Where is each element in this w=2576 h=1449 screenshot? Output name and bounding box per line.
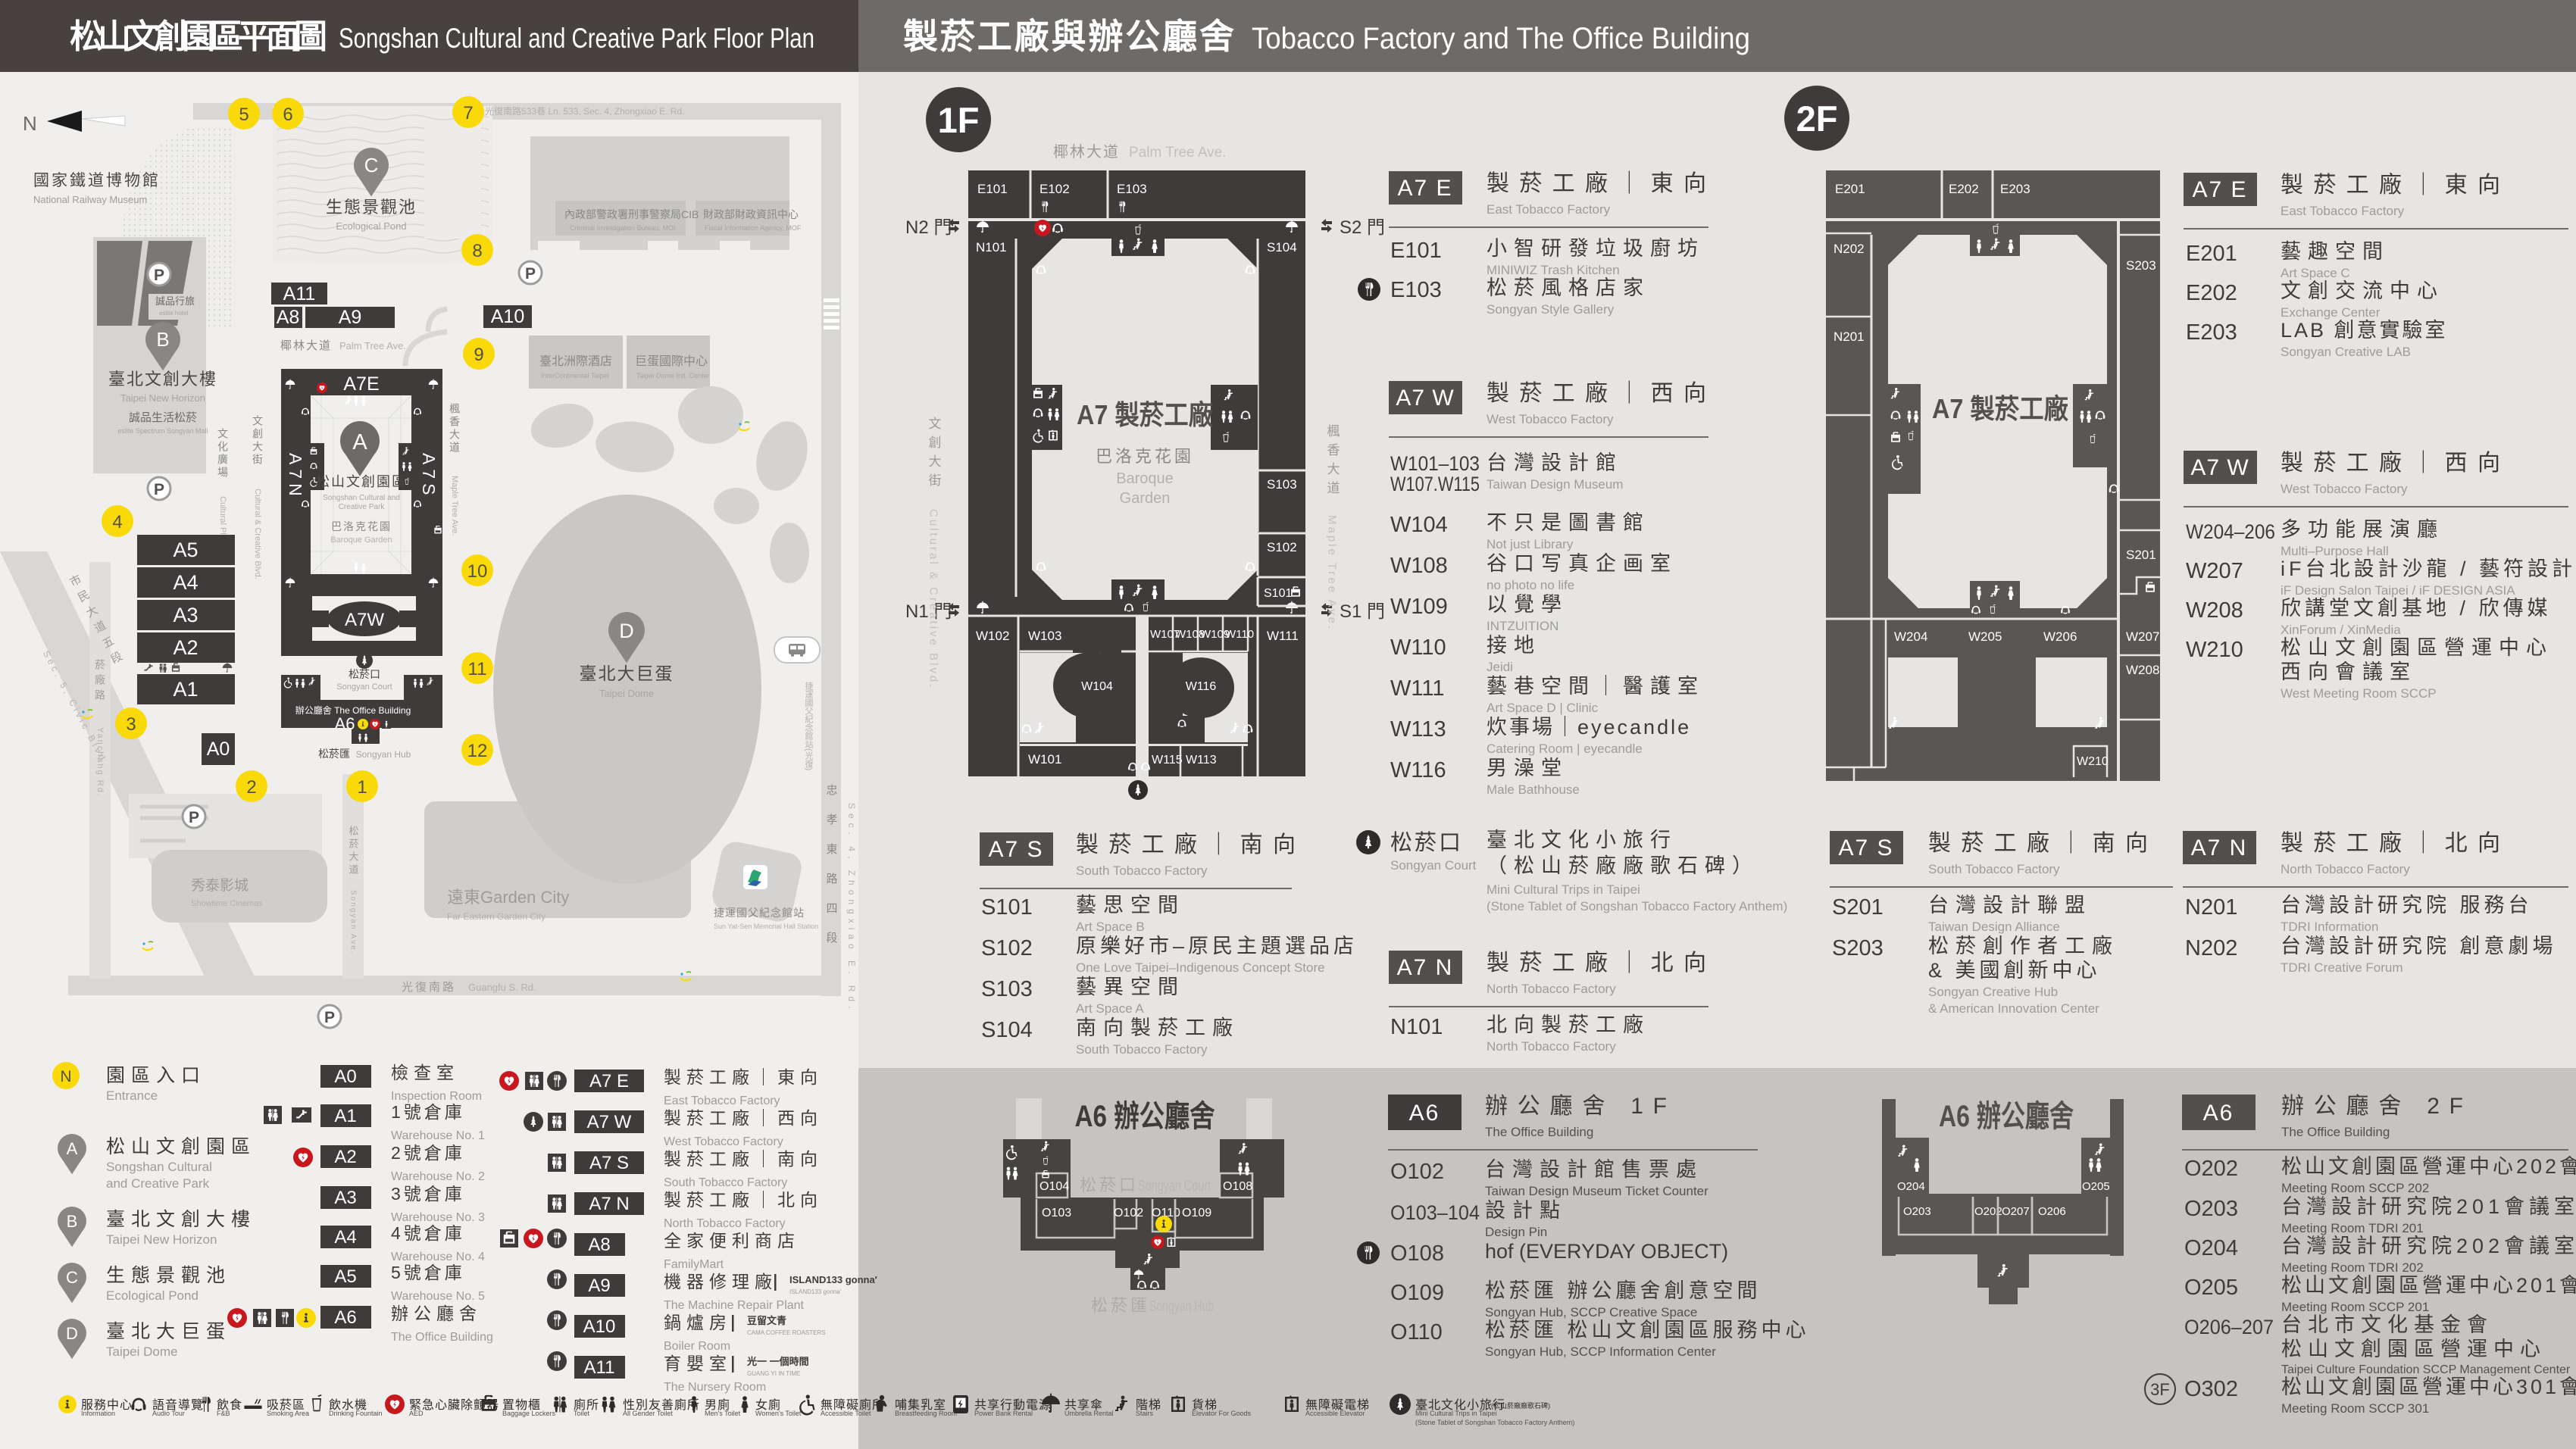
svg-text:巨蛋國際中心: 巨蛋國際中心 bbox=[635, 354, 708, 368]
svg-text:Art Space A: Art Space A bbox=[1076, 1001, 1144, 1016]
svg-text:W111: W111 bbox=[1390, 676, 1444, 701]
svg-text:Songyan Hub, SCCP Information: Songyan Hub, SCCP Information Center bbox=[1485, 1344, 1716, 1359]
svg-text:O205: O205 bbox=[2082, 1180, 2110, 1193]
svg-text:N: N bbox=[23, 112, 37, 135]
svg-text:製菸工廠｜西向: 製菸工廠｜西向 bbox=[664, 1108, 823, 1128]
svg-text:Warehouse No. 2: Warehouse No. 2 bbox=[391, 1170, 485, 1183]
svg-text:Sec. 4, Zhongxiao E. Rd.: Sec. 4, Zhongxiao E. Rd. bbox=[846, 803, 857, 1013]
svg-text:Warehouse No. 5: Warehouse No. 5 bbox=[391, 1290, 485, 1303]
svg-text:台灣設計研究院 創意劇場: 台灣設計研究院 創意劇場 bbox=[2281, 935, 2557, 957]
svg-text:製菸工廠｜東向: 製菸工廠｜東向 bbox=[2281, 173, 2500, 198]
svg-text:11: 11 bbox=[468, 659, 487, 679]
svg-text:松菸匯 松山文創園區服務中心: 松菸匯 松山文創園區服務中心 bbox=[1485, 1319, 1810, 1341]
svg-text:South Tobacco Factory: South Tobacco Factory bbox=[664, 1176, 787, 1189]
svg-text:A5: A5 bbox=[334, 1266, 356, 1287]
svg-text:多功能展演廳: 多功能展演廳 bbox=[2281, 518, 2444, 541]
svg-text:松菸匯: 松菸匯 bbox=[1091, 1296, 1150, 1315]
svg-text:Songyan Creative Hub: Songyan Creative Hub bbox=[1928, 985, 2058, 999]
svg-text:製菸工廠｜北向: 製菸工廠｜北向 bbox=[2281, 831, 2500, 856]
svg-text:West Meeting Room SCCP: West Meeting Room SCCP bbox=[2281, 686, 2437, 701]
svg-text:E103: E103 bbox=[1390, 278, 1442, 302]
svg-text:全家便利商店: 全家便利商店 bbox=[664, 1231, 800, 1251]
svg-text:A7 S: A7 S bbox=[988, 837, 1043, 862]
svg-text:松山文創園區平面圖: 松山文創園區平面圖 bbox=[70, 18, 327, 55]
svg-text:10: 10 bbox=[467, 561, 488, 582]
svg-text:A7 E: A7 E bbox=[1397, 176, 1452, 201]
svg-text:Guangfu S. Rd.: Guangfu S. Rd. bbox=[468, 982, 536, 993]
svg-text:松山文創園區: 松山文創園區 bbox=[106, 1136, 256, 1157]
svg-text:S2 門: S2 門 bbox=[1340, 217, 1385, 238]
svg-text:MINIWIZ Trash Kitchen: MINIWIZ Trash Kitchen bbox=[1487, 263, 1620, 277]
svg-text:& American Innovation Center: & American Innovation Center bbox=[1928, 1001, 2099, 1016]
svg-text:W210: W210 bbox=[2186, 638, 2243, 662]
svg-text:E101: E101 bbox=[977, 182, 1008, 196]
svg-text:S201: S201 bbox=[1832, 895, 1884, 920]
svg-text:O204: O204 bbox=[1897, 1180, 1925, 1193]
svg-text:Inspection Room: Inspection Room bbox=[391, 1090, 482, 1103]
svg-text:文創大街: 文創大街 bbox=[252, 415, 264, 467]
svg-text:Taipei Dome Intl. Center: Taipei Dome Intl. Center bbox=[636, 372, 710, 379]
svg-text:檢查室: 檢查室 bbox=[391, 1063, 459, 1082]
svg-text:N201: N201 bbox=[2185, 895, 2237, 920]
svg-text:製菸工廠｜南向: 製菸工廠｜南向 bbox=[664, 1149, 823, 1169]
svg-text:1F: 1F bbox=[938, 100, 980, 140]
svg-text:W113: W113 bbox=[1186, 754, 1217, 767]
svg-text:台灣設計研究院201會議室: 台灣設計研究院201會議室 bbox=[2281, 1195, 2576, 1218]
svg-text:Taiwan Design Alliance: Taiwan Design Alliance bbox=[1928, 920, 2060, 934]
svg-text:N101: N101 bbox=[1390, 1015, 1443, 1039]
svg-text:Songyan Ave.: Songyan Ave. bbox=[349, 890, 358, 955]
svg-text:Not just Library: Not just Library bbox=[1487, 537, 1574, 551]
svg-text:Art Space B: Art Space B bbox=[1076, 920, 1145, 934]
svg-text:ISLAND133 gonna′: ISLAND133 gonna′ bbox=[789, 1274, 877, 1285]
svg-text:O206: O206 bbox=[2038, 1205, 2066, 1218]
svg-text:椰林大道: 椰林大道 bbox=[280, 339, 332, 352]
svg-text:Creative Park: Creative Park bbox=[339, 503, 386, 511]
svg-text:O108: O108 bbox=[1390, 1241, 1444, 1266]
svg-text:O204: O204 bbox=[2184, 1236, 2238, 1260]
svg-text:W208: W208 bbox=[2186, 598, 2243, 623]
svg-text:松山文創園區營運中心: 松山文創園區營運中心 bbox=[2281, 636, 2553, 659]
svg-text:Baroque: Baroque bbox=[1116, 470, 1174, 487]
svg-text:B: B bbox=[67, 1212, 78, 1231]
svg-text:製菸工廠｜西向: 製菸工廠｜西向 bbox=[2281, 451, 2500, 476]
svg-text:A6: A6 bbox=[335, 714, 355, 733]
svg-text:菸廠路: 菸廠路 bbox=[94, 659, 106, 704]
svg-text:North Tobacco Factory: North Tobacco Factory bbox=[664, 1217, 786, 1230]
svg-text:South Tobacco Factory: South Tobacco Factory bbox=[1928, 862, 2060, 876]
svg-text:W111: W111 bbox=[1267, 629, 1299, 643]
svg-text:A4: A4 bbox=[173, 571, 198, 594]
svg-text:W113: W113 bbox=[1390, 717, 1446, 742]
svg-text:O102: O102 bbox=[1390, 1160, 1444, 1184]
svg-text:The Office Building: The Office Building bbox=[391, 1331, 493, 1344]
svg-text:Songyan Court: Songyan Court bbox=[1138, 1178, 1211, 1194]
svg-text:Maple Tree Ave.: Maple Tree Ave. bbox=[450, 476, 459, 536]
svg-text:臺北文創大樓: 臺北文創大樓 bbox=[106, 1209, 256, 1230]
svg-text:Jeidi: Jeidi bbox=[1487, 660, 1513, 674]
svg-text:Multi–Purpose Hall: Multi–Purpose Hall bbox=[2281, 544, 2389, 558]
svg-text:巴洛克花園: 巴洛克花園 bbox=[1096, 447, 1194, 466]
svg-text:E103: E103 bbox=[1117, 182, 1147, 196]
svg-text:P: P bbox=[525, 265, 536, 283]
svg-text:A7 製菸工廠: A7 製菸工廠 bbox=[1932, 393, 2068, 424]
svg-text:A0: A0 bbox=[207, 739, 230, 760]
svg-text:O110: O110 bbox=[1390, 1320, 1443, 1344]
svg-text:West Tobacco Factory: West Tobacco Factory bbox=[1487, 412, 1614, 426]
svg-text:The Nursery Room: The Nursery Room bbox=[664, 1381, 766, 1394]
svg-text:3F: 3F bbox=[2150, 1380, 2170, 1399]
svg-text:One Love Taipei–Indigenous Con: One Love Taipei–Indigenous Concept Store bbox=[1076, 960, 1325, 975]
svg-text:A7S: A7S bbox=[419, 453, 439, 499]
svg-text:豆留文青: 豆留文青 bbox=[747, 1315, 786, 1326]
svg-text:Stairs: Stairs bbox=[1136, 1410, 1154, 1417]
svg-text:A7 N: A7 N bbox=[589, 1194, 629, 1214]
svg-text:松菸匯 辦公廳舍創意空間: 松菸匯 辦公廳舍創意空間 bbox=[1485, 1279, 1762, 1302]
svg-text:CAMA COFFEE ROASTERS: CAMA COFFEE ROASTERS bbox=[747, 1329, 826, 1336]
svg-text:W115: W115 bbox=[1152, 754, 1183, 767]
svg-text:O203: O203 bbox=[1903, 1205, 1931, 1218]
svg-text:GUANG YI IN TIME: GUANG YI IN TIME bbox=[747, 1370, 800, 1377]
svg-text:7: 7 bbox=[463, 103, 473, 123]
svg-text:S203: S203 bbox=[2126, 258, 2156, 273]
svg-text:5號倉庫: 5號倉庫 bbox=[391, 1263, 465, 1282]
svg-text:A7 E: A7 E bbox=[2192, 177, 2247, 202]
svg-text:W116: W116 bbox=[1186, 680, 1217, 693]
svg-text:6: 6 bbox=[283, 105, 292, 125]
svg-text:INTZUITION: INTZUITION bbox=[1487, 619, 1558, 633]
svg-text:XinForum / XinMedia: XinForum / XinMedia bbox=[2281, 623, 2401, 637]
svg-text:Male Bathhouse: Male Bathhouse bbox=[1487, 782, 1580, 797]
svg-text:O302: O302 bbox=[2184, 1377, 2238, 1401]
svg-text:InterContinental Taipei: InterContinental Taipei bbox=[541, 372, 608, 379]
svg-text:Toilet: Toilet bbox=[574, 1410, 590, 1417]
svg-text:A7N: A7N bbox=[286, 453, 305, 501]
svg-text:A7 N: A7 N bbox=[2191, 835, 2248, 860]
svg-text:O103–104: O103–104 bbox=[1390, 1201, 1480, 1224]
svg-text:光復南路: 光復南路 bbox=[402, 981, 456, 994]
svg-text:O206–207: O206–207 bbox=[2184, 1316, 2274, 1338]
svg-text:Accessible Toilet: Accessible Toilet bbox=[821, 1410, 871, 1417]
svg-text:藝思空間: 藝思空間 bbox=[1076, 894, 1185, 917]
svg-text:機器修理廠: 機器修理廠 bbox=[664, 1272, 777, 1291]
svg-text:松山文創園區營運中心201會議室: 松山文創園區營運中心201會議室 bbox=[2281, 1274, 2576, 1297]
svg-text:Boiler Room: Boiler Room bbox=[664, 1340, 730, 1353]
svg-text:4號倉庫: 4號倉庫 bbox=[391, 1223, 465, 1243]
svg-text:O109: O109 bbox=[1390, 1281, 1444, 1305]
svg-text:eslite hotel: eslite hotel bbox=[159, 310, 188, 317]
svg-text:Taipei New Horizon: Taipei New Horizon bbox=[120, 392, 205, 404]
svg-text:誠品行旅: 誠品行旅 bbox=[155, 295, 195, 307]
svg-text:Mini Cultural Trips in Taipei: Mini Cultural Trips in Taipei bbox=[1415, 1410, 1496, 1417]
svg-text:S1 門: S1 門 bbox=[1340, 601, 1385, 622]
svg-text:(Stone Tablet of Songshan Toba: (Stone Tablet of Songshan Tobacco Factor… bbox=[1487, 899, 1787, 913]
svg-text:S103: S103 bbox=[1267, 477, 1297, 492]
svg-text:TDRI Creative Forum: TDRI Creative Forum bbox=[2281, 960, 2403, 975]
svg-text:Audio Tour: Audio Tour bbox=[152, 1410, 185, 1417]
svg-text:South Tobacco Factory: South Tobacco Factory bbox=[1076, 1042, 1208, 1057]
svg-text:Meeting Room SCCP 202: Meeting Room SCCP 202 bbox=[2281, 1181, 2429, 1195]
svg-text:W104: W104 bbox=[1390, 513, 1448, 537]
svg-text:9: 9 bbox=[474, 345, 483, 365]
svg-text:光復南路533巷 Ln. 533, Sec. 4, Zhon: 光復南路533巷 Ln. 533, Sec. 4, Zhongxiao E. R… bbox=[485, 105, 684, 117]
svg-text:捷運國父紀念館站(光復): 捷運國父紀念館站(光復) bbox=[804, 681, 814, 771]
svg-text:S101: S101 bbox=[1264, 587, 1292, 600]
svg-text:Information: Information bbox=[81, 1410, 115, 1417]
svg-text:South Tobacco Factory: South Tobacco Factory bbox=[1076, 863, 1208, 878]
svg-text:財政部財政資訊中心: 財政部財政資訊中心 bbox=[703, 208, 799, 220]
svg-text:S201: S201 bbox=[2126, 548, 2156, 562]
svg-text:松山文創園區營運中心: 松山文創園區營運中心 bbox=[2281, 1338, 2546, 1360]
svg-text:The Machine Repair Plant: The Machine Repair Plant bbox=[664, 1299, 805, 1312]
svg-text:and Creative Park: and Creative Park bbox=[106, 1176, 210, 1191]
svg-text:台灣設計館售票處: 台灣設計館售票處 bbox=[1485, 1158, 1703, 1181]
svg-text:W116: W116 bbox=[1390, 758, 1446, 782]
svg-text:Umbrella Rental: Umbrella Rental bbox=[1064, 1410, 1114, 1417]
svg-text:O203: O203 bbox=[2184, 1197, 2238, 1221]
svg-text:A: A bbox=[352, 430, 367, 454]
svg-text:S103: S103 bbox=[981, 977, 1033, 1001]
svg-text:Art Space C: Art Space C bbox=[2281, 266, 2350, 280]
svg-text:松菸大道: 松菸大道 bbox=[348, 826, 359, 877]
svg-text:E202: E202 bbox=[2186, 281, 2237, 305]
svg-text:松菸風格店家: 松菸風格店家 bbox=[1487, 276, 1650, 299]
svg-text:Palm Tree Ave.: Palm Tree Ave. bbox=[1129, 145, 1227, 161]
svg-text:North Tobacco Factory: North Tobacco Factory bbox=[2281, 862, 2410, 876]
svg-text:Meeting Room TDRI 202: Meeting Room TDRI 202 bbox=[2281, 1260, 2424, 1275]
svg-text:Catering Room | eyecandle: Catering Room | eyecandle bbox=[1487, 742, 1643, 756]
svg-text:A4: A4 bbox=[334, 1227, 356, 1248]
svg-text:A11: A11 bbox=[283, 283, 316, 304]
svg-text:Sun Yat-Sen Memorial Hall Stat: Sun Yat-Sen Memorial Hall Station bbox=[714, 923, 818, 930]
svg-text:E203: E203 bbox=[2000, 182, 2030, 196]
svg-text:Palm Tree Ave.: Palm Tree Ave. bbox=[339, 340, 406, 351]
svg-text:楓香大道: 楓香大道 bbox=[449, 403, 461, 454]
svg-text:W109: W109 bbox=[1390, 595, 1448, 619]
svg-text:East Tobacco Factory: East Tobacco Factory bbox=[1487, 202, 1611, 217]
svg-text:（松山菸廠廠歌石碑）: （松山菸廠廠歌石碑） bbox=[1487, 854, 1759, 877]
svg-text:W104: W104 bbox=[1081, 680, 1113, 693]
svg-text:O205: O205 bbox=[2184, 1276, 2238, 1300]
svg-text:Songyan Court: Songyan Court bbox=[1390, 858, 1477, 873]
svg-text:光一 一個時間: 光一 一個時間 bbox=[746, 1356, 809, 1367]
svg-text:Breastfeeding Room: Breastfeeding Room bbox=[895, 1410, 957, 1417]
svg-text:松菸口: 松菸口 bbox=[1390, 830, 1463, 855]
svg-text:遠東Garden City: 遠東Garden City bbox=[447, 888, 569, 907]
svg-text:P: P bbox=[154, 267, 164, 284]
svg-text:A3: A3 bbox=[334, 1188, 356, 1208]
svg-text:Accessible Elevator: Accessible Elevator bbox=[1305, 1410, 1365, 1417]
svg-text:A0: A0 bbox=[334, 1066, 356, 1087]
svg-text:no photo no life: no photo no life bbox=[1487, 578, 1574, 592]
svg-text:不只是圖書館: 不只是圖書館 bbox=[1487, 511, 1650, 534]
svg-text:Songyan Hub, SCCP Creative Spa: Songyan Hub, SCCP Creative Space bbox=[1485, 1305, 1697, 1319]
svg-text:台灣設計聯盟: 台灣設計聯盟 bbox=[1928, 894, 2092, 917]
svg-text:以覺學: 以覺學 bbox=[1487, 593, 1568, 616]
svg-text:Songyan Court: Songyan Court bbox=[336, 682, 392, 692]
svg-text:製菸工廠｜東向: 製菸工廠｜東向 bbox=[1487, 171, 1706, 196]
svg-text:A10: A10 bbox=[491, 306, 524, 327]
svg-text:Ecological Pond: Ecological Pond bbox=[106, 1288, 199, 1303]
svg-text:A7 W: A7 W bbox=[2190, 455, 2249, 480]
svg-text:eslite Spectrum Songyan Mall: eslite Spectrum Songyan Mall bbox=[117, 427, 208, 435]
svg-text:製菸工廠｜西向: 製菸工廠｜西向 bbox=[1487, 381, 1706, 406]
svg-text:A1: A1 bbox=[173, 678, 198, 701]
svg-text:hof (EVERYDAY OBJECT): hof (EVERYDAY OBJECT) bbox=[1485, 1240, 1728, 1263]
svg-text:小智研發垃圾廚坊: 小智研發垃圾廚坊 bbox=[1487, 237, 1705, 260]
svg-text:北向製菸工廠: 北向製菸工廠 bbox=[1487, 1013, 1650, 1036]
svg-text:Taiwan Design Museum: Taiwan Design Museum bbox=[1487, 477, 1623, 492]
svg-text:生態景觀池: 生態景觀池 bbox=[106, 1265, 231, 1286]
svg-text:松菸口: 松菸口 bbox=[349, 668, 380, 680]
svg-text:A: A bbox=[67, 1139, 78, 1158]
svg-text:原樂好市–原民主題選品店: 原樂好市–原民主題選品店 bbox=[1076, 935, 1358, 957]
svg-text:Songshan Cultural: Songshan Cultural bbox=[106, 1160, 212, 1174]
svg-text:台北市文化基金會: 台北市文化基金會 bbox=[2281, 1313, 2493, 1336]
svg-text:Songyan Creative LAB: Songyan Creative LAB bbox=[2281, 345, 2411, 359]
svg-text:松山文創園區: 松山文創園區 bbox=[316, 474, 407, 489]
svg-text:Taiwan Design Museum Ticket Co: Taiwan Design Museum Ticket Counter bbox=[1485, 1184, 1708, 1198]
svg-text:秀泰影城: 秀泰影城 bbox=[191, 877, 249, 894]
svg-text:E201: E201 bbox=[2186, 242, 2237, 266]
svg-text:台灣設計研究院 服務台: 台灣設計研究院 服務台 bbox=[2281, 894, 2533, 917]
svg-text:Exchange Center: Exchange Center bbox=[2281, 305, 2381, 320]
svg-text:North Tobacco Factory: North Tobacco Factory bbox=[1487, 982, 1616, 996]
svg-text:A9: A9 bbox=[588, 1276, 610, 1296]
svg-text:Showtime Cinemas: Showtime Cinemas bbox=[191, 899, 263, 908]
svg-text:S102: S102 bbox=[981, 936, 1033, 960]
svg-text:12: 12 bbox=[467, 741, 488, 761]
svg-text:園區入口: 園區入口 bbox=[106, 1065, 206, 1086]
svg-text:Warehouse No. 3: Warehouse No. 3 bbox=[391, 1211, 485, 1224]
svg-text:S101: S101 bbox=[981, 895, 1033, 920]
svg-text:Smoking Area: Smoking Area bbox=[267, 1410, 309, 1417]
svg-text:W110: W110 bbox=[1390, 635, 1446, 660]
svg-text:A6: A6 bbox=[334, 1307, 356, 1328]
svg-text:Songyan Hub: Songyan Hub bbox=[1149, 1298, 1214, 1315]
svg-text:松山文創園區營運中心202會議室: 松山文創園區營運中心202會議室 bbox=[2281, 1155, 2576, 1178]
svg-text:A3: A3 bbox=[173, 604, 198, 626]
svg-text:A2: A2 bbox=[334, 1147, 356, 1167]
svg-text:Garden: Garden bbox=[1120, 490, 1171, 507]
svg-text:製菸工廠｜南向: 製菸工廠｜南向 bbox=[1076, 832, 1296, 857]
svg-text:8: 8 bbox=[472, 241, 482, 261]
svg-text:臺北文創大樓: 臺北文創大樓 bbox=[108, 370, 217, 389]
svg-text:O104: O104 bbox=[1039, 1180, 1069, 1193]
svg-text:W101: W101 bbox=[1028, 752, 1061, 767]
svg-text:Men's Toilet: Men's Toilet bbox=[705, 1410, 741, 1417]
svg-text:Baroque Garden: Baroque Garden bbox=[330, 536, 392, 545]
svg-text:Songshan Cultural and: Songshan Cultural and bbox=[323, 494, 400, 502]
svg-text:W103: W103 bbox=[1028, 629, 1061, 643]
svg-text:A7 N: A7 N bbox=[1397, 955, 1454, 980]
svg-text:文化廣場: 文化廣場 bbox=[217, 428, 229, 479]
svg-text:A10: A10 bbox=[583, 1316, 616, 1337]
svg-text:A6: A6 bbox=[2203, 1101, 2234, 1126]
svg-text:臺北洲際酒店: 臺北洲際酒店 bbox=[539, 354, 612, 368]
svg-text:A1: A1 bbox=[334, 1106, 356, 1126]
svg-text:Ecological Pond: Ecological Pond bbox=[336, 220, 406, 232]
svg-text:台灣設計館: 台灣設計館 bbox=[1487, 451, 1623, 474]
svg-text:E203: E203 bbox=[2186, 320, 2237, 345]
svg-text:藝趣空間: 藝趣空間 bbox=[2281, 240, 2390, 263]
svg-text:製菸工廠與辦公廳舍: 製菸工廠與辦公廳舍 bbox=[903, 17, 1234, 56]
svg-text:N202: N202 bbox=[2185, 936, 2237, 960]
svg-text:台灣設計研究院202會議室: 台灣設計研究院202會議室 bbox=[2281, 1235, 2576, 1257]
svg-text:A5: A5 bbox=[173, 539, 198, 561]
svg-text:松菸創作者工廠: 松菸創作者工廠 bbox=[1928, 935, 2119, 957]
svg-text:Songyan Style Gallery: Songyan Style Gallery bbox=[1487, 302, 1615, 317]
svg-text:W101–103: W101–103 bbox=[1390, 452, 1480, 475]
svg-text:楓香大道: 楓香大道 bbox=[1325, 424, 1340, 500]
svg-text:A9: A9 bbox=[339, 307, 362, 328]
svg-text:O202: O202 bbox=[2184, 1157, 2238, 1181]
svg-text:A2: A2 bbox=[173, 636, 198, 659]
svg-text:2: 2 bbox=[246, 777, 256, 798]
svg-text:文創大街: 文創大街 bbox=[927, 417, 942, 492]
svg-text:Maple Tree Ave.: Maple Tree Ave. bbox=[1326, 515, 1339, 631]
svg-text:A8: A8 bbox=[588, 1235, 610, 1255]
svg-text:Cultural & Creative Blvd.: Cultural & Creative Blvd. bbox=[253, 489, 262, 579]
svg-text:A7 W: A7 W bbox=[587, 1112, 632, 1132]
svg-text:C: C bbox=[364, 154, 379, 176]
svg-text:1號倉庫: 1號倉庫 bbox=[391, 1102, 465, 1122]
svg-text:W207: W207 bbox=[2126, 629, 2159, 644]
svg-text:& 美國創新中心: & 美國創新中心 bbox=[1928, 959, 2101, 982]
svg-text:誠品生活松菸: 誠品生活松菸 bbox=[129, 411, 197, 424]
svg-text:O102: O102 bbox=[1114, 1207, 1143, 1219]
svg-text:East Tobacco Factory: East Tobacco Factory bbox=[664, 1095, 780, 1107]
svg-text:製菸工廠｜東向: 製菸工廠｜東向 bbox=[664, 1067, 823, 1087]
svg-text:F&B: F&B bbox=[217, 1410, 230, 1417]
svg-text:接地: 接地 bbox=[1487, 634, 1541, 657]
svg-text:巴洛克花園: 巴洛克花園 bbox=[331, 520, 392, 532]
svg-text:捷運國父紀念館站: 捷運國父紀念館站 bbox=[714, 907, 805, 919]
svg-text:North Tobacco Factory: North Tobacco Factory bbox=[1487, 1039, 1616, 1054]
svg-text:Elevator For Goods: Elevator For Goods bbox=[1192, 1410, 1252, 1417]
svg-text:N202: N202 bbox=[1834, 242, 1865, 256]
svg-text:Drinking Fountain: Drinking Fountain bbox=[329, 1410, 383, 1417]
svg-text:內政部警政署刑事警察局CIB: 內政部警政署刑事警察局CIB bbox=[564, 208, 699, 220]
svg-text:Fiscal Information Agency, MOF: Fiscal Information Agency, MOF bbox=[705, 224, 802, 232]
svg-text:Cultural & Creative Blvd.: Cultural & Creative Blvd. bbox=[927, 509, 940, 689]
svg-text:P: P bbox=[189, 809, 199, 826]
svg-text:W110: W110 bbox=[1225, 628, 1254, 641]
svg-text:3: 3 bbox=[126, 714, 136, 735]
svg-text:N201: N201 bbox=[1834, 329, 1865, 344]
svg-text:W207: W207 bbox=[2186, 559, 2243, 583]
svg-text:3號倉庫: 3號倉庫 bbox=[391, 1184, 465, 1204]
svg-text:Taipei New Horizon: Taipei New Horizon bbox=[106, 1232, 217, 1247]
svg-text:Taipei Dome: Taipei Dome bbox=[599, 688, 654, 699]
svg-text:TDRI Information: TDRI Information bbox=[2281, 920, 2378, 934]
svg-text:A7W: A7W bbox=[345, 610, 384, 630]
svg-text:Meeting Room SCCP 301: Meeting Room SCCP 301 bbox=[2281, 1401, 2429, 1416]
svg-text:國家鐵道博物館: 國家鐵道博物館 bbox=[33, 172, 161, 189]
svg-text:製菸工廠｜北向: 製菸工廠｜北向 bbox=[1487, 951, 1706, 976]
svg-text:W210: W210 bbox=[2077, 755, 2109, 768]
svg-text:臺北大巨蛋: 臺北大巨蛋 bbox=[580, 664, 674, 683]
svg-text:Tobacco Factory and The Office: Tobacco Factory and The Office Building bbox=[1252, 22, 1750, 55]
svg-text:W204–206: W204–206 bbox=[2186, 520, 2275, 543]
svg-text:AED: AED bbox=[409, 1410, 424, 1417]
svg-text:忠孝東路四段: 忠孝東路四段 bbox=[825, 784, 838, 961]
svg-text:S102: S102 bbox=[1267, 540, 1297, 554]
svg-text:Art Space D | Clinic: Art Space D | Clinic bbox=[1487, 701, 1599, 715]
svg-text:松菸匯: 松菸匯 bbox=[318, 748, 350, 760]
svg-text:W107.W115: W107.W115 bbox=[1390, 473, 1480, 495]
svg-text:2F: 2F bbox=[1796, 98, 1838, 139]
